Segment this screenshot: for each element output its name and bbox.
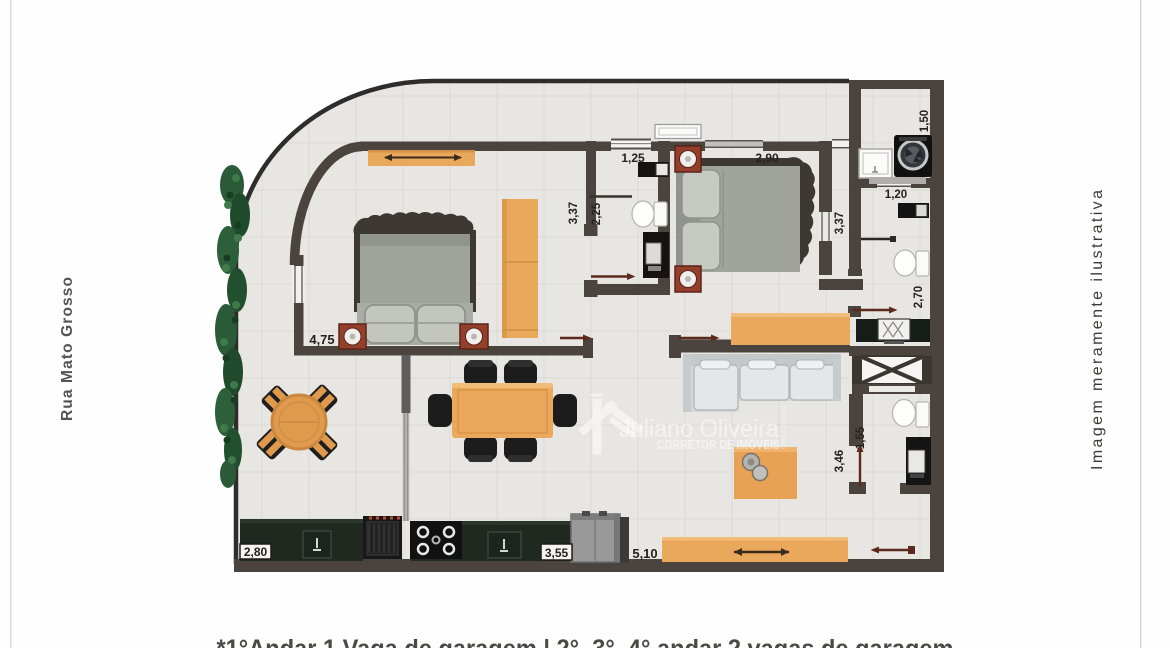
svg-text:3,55: 3,55 xyxy=(545,546,569,560)
svg-text:*1°Andar 1 Vaga de garagem | 2: *1°Andar 1 Vaga de garagem | 2°, 3°, 4° … xyxy=(217,635,954,648)
svg-text:1,20: 1,20 xyxy=(885,189,907,201)
svg-text:2,25: 2,25 xyxy=(591,202,603,225)
svg-text:3,37: 3,37 xyxy=(834,212,846,234)
svg-text:3,46: 3,46 xyxy=(834,450,846,472)
svg-text:4,75: 4,75 xyxy=(309,332,334,347)
svg-text:5,10: 5,10 xyxy=(632,546,657,561)
svg-text:CRECI 15.034 J: CRECI 15.034 J xyxy=(782,406,788,449)
svg-text:Imagem meramente ilustrativa: Imagem meramente ilustrativa xyxy=(1089,190,1106,470)
svg-text:2,80: 2,80 xyxy=(244,545,268,559)
svg-text:3,37: 3,37 xyxy=(568,202,580,224)
svg-text:1,55: 1,55 xyxy=(855,426,867,449)
svg-text:Rua Mato Grosso: Rua Mato Grosso xyxy=(59,277,76,421)
svg-text:1,50: 1,50 xyxy=(919,110,931,132)
svg-text:CORRETOR DE IMÓVEIS: CORRETOR DE IMÓVEIS xyxy=(657,437,780,452)
svg-text:2,70: 2,70 xyxy=(913,286,925,308)
svg-text:1,25: 1,25 xyxy=(621,151,645,165)
svg-text:2,90: 2,90 xyxy=(755,151,779,165)
